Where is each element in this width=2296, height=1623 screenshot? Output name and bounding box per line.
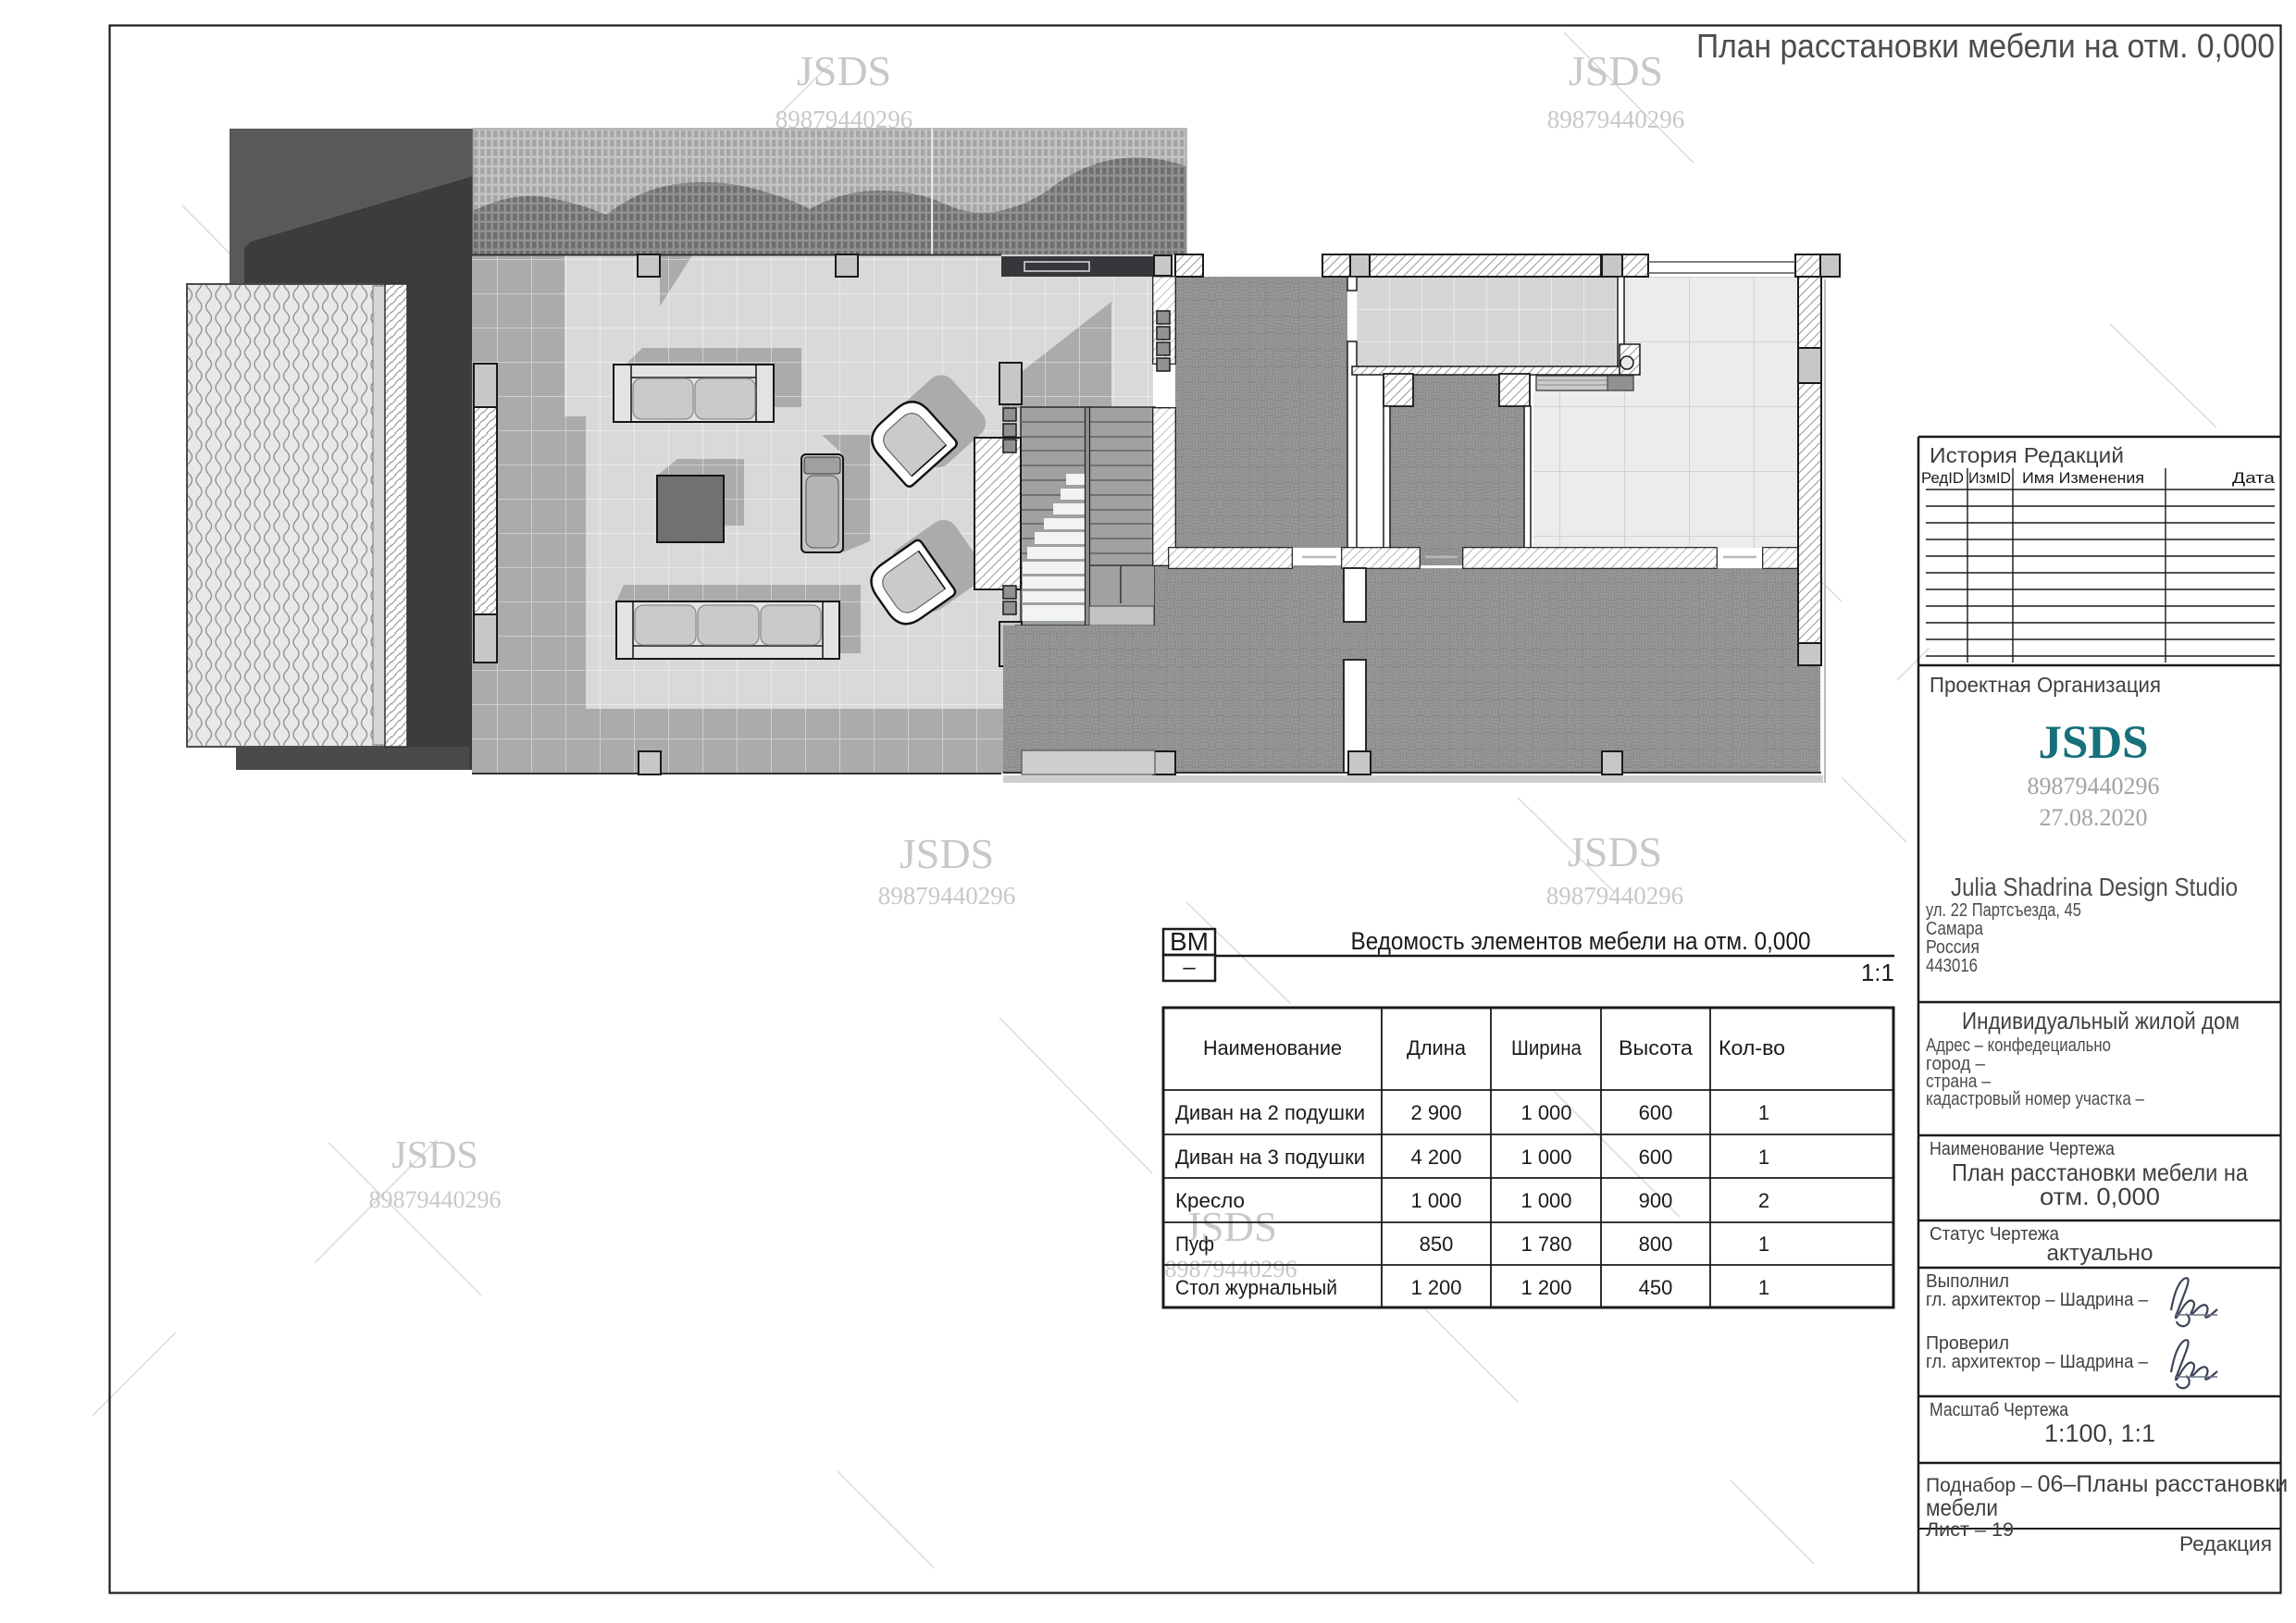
svg-text:актуально: актуально — [2047, 1241, 2153, 1266]
svg-text:1: 1 — [1758, 1101, 1769, 1124]
svg-text:Статус Чертежа: Статус Чертежа — [1930, 1224, 2060, 1245]
svg-text:отм. 0,000: отм. 0,000 — [2040, 1183, 2160, 1210]
svg-text:–: – — [1183, 955, 1196, 980]
svg-text:89879440296: 89879440296 — [878, 882, 1016, 910]
svg-text:443016: 443016 — [1926, 956, 1978, 976]
svg-text:Редакция: Редакция — [2179, 1532, 2272, 1555]
svg-text:1 200: 1 200 — [1520, 1276, 1571, 1299]
svg-text:Масштаб Чертежа: Масштаб Чертежа — [1930, 1400, 2069, 1420]
svg-text:Высота: Высота — [1619, 1036, 1694, 1059]
svg-text:мебели: мебели — [1926, 1495, 1998, 1521]
svg-text:2 900: 2 900 — [1410, 1101, 1461, 1124]
svg-text:2: 2 — [1758, 1189, 1769, 1212]
svg-text:кадастровый номер участка –: кадастровый номер участка – — [1926, 1089, 2145, 1109]
svg-text:Проверил: Проверил — [1926, 1333, 2009, 1354]
svg-text:Проектная Организация: Проектная Организация — [1930, 673, 2161, 697]
svg-text:РедID: РедID — [1921, 469, 1964, 487]
svg-text:1 000: 1 000 — [1410, 1189, 1461, 1212]
svg-text:Наименование: Наименование — [1203, 1036, 1342, 1059]
svg-text:Имя Изменения: Имя Изменения — [2022, 469, 2144, 487]
svg-text:Поднабор – 06–Планы расстановк: Поднабор – 06–Планы расстановки — [1926, 1471, 2288, 1497]
svg-text:1: 1 — [1758, 1146, 1769, 1169]
svg-text:600: 600 — [1639, 1101, 1673, 1124]
svg-text:89879440296: 89879440296 — [1547, 105, 1685, 133]
svg-text:Ведомость элементов мебели на: Ведомость элементов мебели на отм. 0,000 — [1351, 927, 1811, 955]
svg-text:Наименование Чертежа: Наименование Чертежа — [1930, 1139, 2116, 1159]
svg-text:900: 900 — [1639, 1189, 1673, 1212]
svg-text:450: 450 — [1639, 1276, 1673, 1299]
svg-text:Индивидуальный жилой дом: Индивидуальный жилой дом — [1962, 1007, 2240, 1035]
svg-text:Кол-во: Кол-во — [1719, 1036, 1785, 1059]
svg-text:850: 850 — [1420, 1233, 1454, 1256]
svg-text:1 000: 1 000 — [1520, 1101, 1571, 1124]
svg-text:1 000: 1 000 — [1520, 1146, 1571, 1169]
svg-text:Самара: Самара — [1926, 919, 1984, 939]
svg-text:Выполнил: Выполнил — [1926, 1271, 2009, 1292]
svg-text:Длина: Длина — [1407, 1036, 1467, 1059]
svg-text:Кресло: Кресло — [1175, 1189, 1245, 1212]
svg-text:Россия: Россия — [1926, 937, 1980, 958]
svg-text:Адрес – конфедециально: Адрес – конфедециально — [1926, 1035, 2111, 1056]
svg-text:Диван на 3 подушки: Диван на 3 подушки — [1175, 1146, 1365, 1169]
svg-text:89879440296: 89879440296 — [2028, 773, 2160, 799]
svg-text:ВМ: ВМ — [1170, 927, 1209, 956]
svg-text:1: 1 — [1758, 1233, 1769, 1256]
svg-text:600: 600 — [1639, 1146, 1673, 1169]
svg-text:1:1: 1:1 — [1861, 959, 1894, 986]
svg-text:89879440296: 89879440296 — [369, 1186, 502, 1213]
svg-text:гл. архитектор – Шадрина –: гл. архитектор – Шадрина – — [1926, 1290, 2149, 1310]
svg-text:Стол журнальный: Стол журнальный — [1175, 1276, 1337, 1299]
svg-text:1 000: 1 000 — [1520, 1189, 1571, 1212]
svg-text:ул. 22 Партсъезда, 45: ул. 22 Партсъезда, 45 — [1926, 900, 2081, 921]
svg-text:JSDS: JSDS — [1569, 47, 1663, 94]
svg-text:27.08.2020: 27.08.2020 — [2040, 804, 2148, 831]
svg-text:Julia Shadrina Design Studio: Julia Shadrina Design Studio — [1951, 873, 2238, 901]
svg-text:План расстановки мебели на отм: План расстановки мебели на отм. 0,000 — [1696, 27, 2275, 65]
svg-text:История Редакций: История Редакций — [1930, 443, 2124, 467]
svg-text:гл. архитектор – Шадрина –: гл. архитектор – Шадрина – — [1926, 1352, 2149, 1372]
svg-text:Ширина: Ширина — [1511, 1036, 1582, 1059]
svg-text:Диван на 2 подушки: Диван на 2 подушки — [1175, 1101, 1365, 1124]
svg-text:Пуф: Пуф — [1175, 1233, 1214, 1256]
svg-text:800: 800 — [1639, 1233, 1673, 1256]
svg-text:89879440296: 89879440296 — [1546, 882, 1684, 910]
svg-text:JSDS: JSDS — [1568, 828, 1662, 875]
svg-text:JSDS: JSDS — [900, 830, 994, 877]
svg-text:4 200: 4 200 — [1410, 1146, 1461, 1169]
svg-text:JSDS: JSDS — [2038, 717, 2148, 769]
svg-text:1 200: 1 200 — [1410, 1276, 1461, 1299]
svg-text:JSDS: JSDS — [797, 47, 891, 94]
svg-text:Дата: Дата — [2232, 469, 2276, 487]
svg-text:Лист – 19: Лист – 19 — [1926, 1519, 2014, 1541]
svg-text:1 780: 1 780 — [1520, 1233, 1571, 1256]
svg-text:1: 1 — [1758, 1276, 1769, 1299]
svg-text:JSDS: JSDS — [391, 1134, 478, 1177]
svg-text:ИзмID: ИзмID — [1968, 469, 2011, 487]
svg-text:1:100, 1:1: 1:100, 1:1 — [2044, 1419, 2155, 1447]
